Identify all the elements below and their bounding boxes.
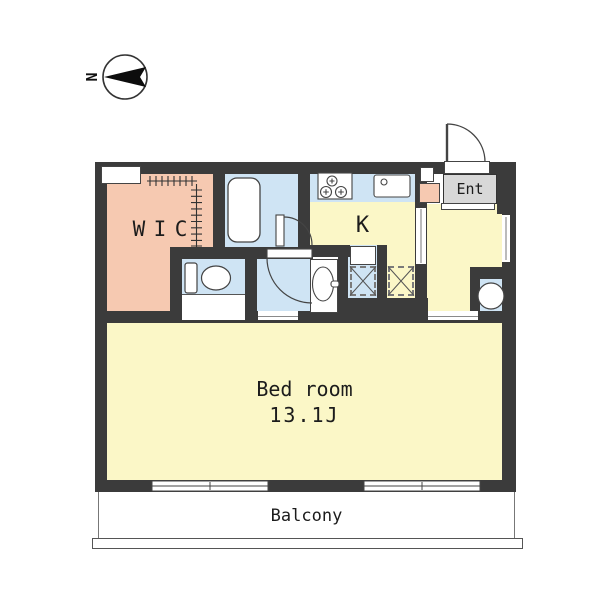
balcony-rail xyxy=(92,538,523,549)
bedroom-name: Bed room xyxy=(107,376,502,402)
meter-box xyxy=(420,167,434,182)
kitchen-counter xyxy=(310,174,415,202)
washer-space xyxy=(350,266,376,296)
hall-wall-slot xyxy=(502,215,510,262)
wall-left xyxy=(95,174,107,492)
round-fixture-box xyxy=(479,279,502,313)
wall-hallbox-top xyxy=(470,267,506,279)
room-toilet-floor xyxy=(182,259,245,294)
wic-window xyxy=(101,166,141,184)
entrance-label: Ent xyxy=(443,180,497,198)
bedroom-size: 13.1J xyxy=(107,402,502,428)
hall-opening xyxy=(428,311,478,320)
washroom-opening xyxy=(258,311,298,320)
wall-bottom xyxy=(95,480,516,492)
entrance-step xyxy=(441,203,495,210)
entrance-door-slot xyxy=(444,161,490,174)
washer-pan xyxy=(350,246,376,265)
room-washroom-floor xyxy=(257,259,310,313)
entrance-door-icon xyxy=(447,124,485,162)
shoe-cabinet xyxy=(419,183,440,203)
wall-right xyxy=(502,162,516,492)
wall-kitchen-bottom xyxy=(298,245,350,257)
wall-ent-right-stub xyxy=(497,174,504,214)
bedroom-label: Bed room 13.1J xyxy=(107,376,502,428)
balcony-label: Balcony xyxy=(98,506,515,526)
floor-plan: N xyxy=(0,0,600,600)
wall-washer-fridge xyxy=(377,245,387,298)
wall-toilet-wash xyxy=(245,259,257,313)
wall-hallbox-left xyxy=(470,279,480,313)
kitchen-label: K xyxy=(310,213,415,238)
compass-north-label: N xyxy=(82,72,100,81)
wall-wic-right xyxy=(213,174,225,247)
wic-label: WIC xyxy=(107,217,213,241)
compass-icon: N xyxy=(82,55,147,99)
kitchen-door-slot xyxy=(416,208,426,264)
vanity-counter xyxy=(310,259,338,313)
fridge-space xyxy=(388,266,414,296)
toilet-recess xyxy=(182,294,245,320)
wall-mid-horizontal xyxy=(170,247,313,259)
